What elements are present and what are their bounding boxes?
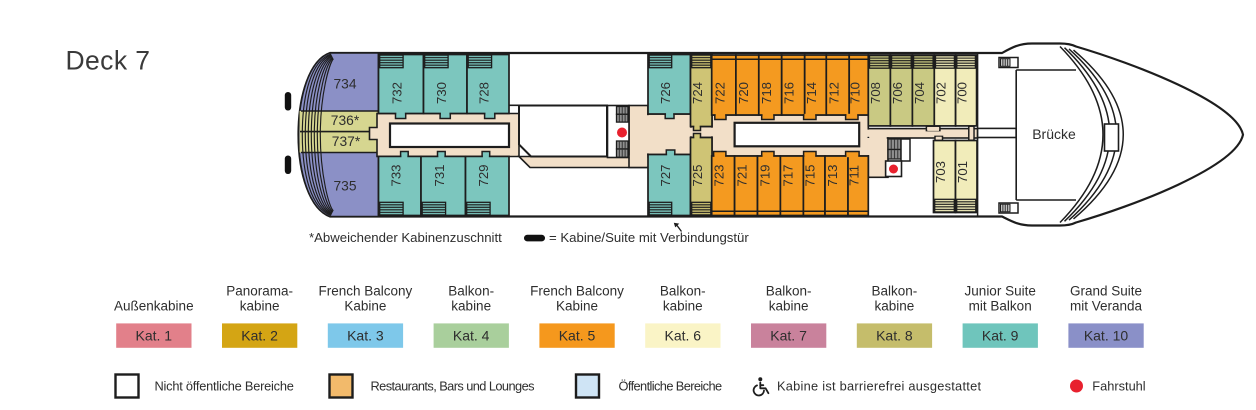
svg-text:Kabine: Kabine bbox=[344, 299, 386, 314]
svg-text:721: 721 bbox=[735, 164, 750, 186]
svg-text:736*: 736* bbox=[331, 113, 360, 128]
svg-text:Grand Suite: Grand Suite bbox=[1070, 283, 1142, 298]
svg-text:Balkon-: Balkon- bbox=[660, 283, 706, 298]
svg-text:731: 731 bbox=[432, 164, 447, 186]
svg-text:Kat. 3: Kat. 3 bbox=[347, 328, 384, 344]
svg-text:Brücke: Brücke bbox=[1032, 126, 1076, 142]
svg-text:724: 724 bbox=[690, 82, 705, 104]
svg-text:734: 734 bbox=[333, 77, 356, 92]
svg-text:701: 701 bbox=[955, 161, 970, 183]
svg-text:Nicht öffentliche Bereiche: Nicht öffentliche Bereiche bbox=[155, 379, 294, 394]
svg-text:711: 711 bbox=[847, 165, 862, 186]
svg-text:Deck 7: Deck 7 bbox=[66, 46, 151, 76]
svg-text:Balkon-: Balkon- bbox=[448, 283, 494, 298]
svg-text:737*: 737* bbox=[332, 134, 361, 149]
svg-text:kabine: kabine bbox=[240, 299, 280, 314]
svg-text:Kat. 8: Kat. 8 bbox=[876, 328, 913, 344]
svg-text:Panorama-: Panorama- bbox=[226, 283, 293, 298]
svg-text:723: 723 bbox=[712, 164, 727, 186]
svg-text:714: 714 bbox=[804, 82, 819, 104]
svg-text:Balkon-: Balkon- bbox=[872, 283, 918, 298]
svg-text:716: 716 bbox=[782, 82, 797, 104]
svg-text:Kabine ist barrierefrei ausges: Kabine ist barrierefrei ausgestattet bbox=[777, 379, 981, 394]
svg-text:Öffentliche Bereiche: Öffentliche Bereiche bbox=[619, 379, 722, 394]
svg-text:Kat. 10: Kat. 10 bbox=[1084, 328, 1129, 344]
svg-text:733: 733 bbox=[388, 164, 403, 186]
svg-text:712: 712 bbox=[826, 82, 841, 104]
svg-text:722: 722 bbox=[712, 82, 727, 104]
svg-text:703: 703 bbox=[933, 161, 948, 183]
svg-text:kabine: kabine bbox=[875, 299, 915, 314]
svg-text:727: 727 bbox=[658, 164, 673, 186]
svg-text:719: 719 bbox=[757, 164, 772, 186]
svg-text:Kat. 5: Kat. 5 bbox=[559, 328, 596, 344]
svg-text:729: 729 bbox=[476, 164, 491, 186]
svg-text:Junior Suite: Junior Suite bbox=[965, 283, 1036, 298]
svg-text:Kat. 9: Kat. 9 bbox=[982, 328, 1019, 344]
svg-text:Balkon-: Balkon- bbox=[766, 283, 812, 298]
svg-text:702: 702 bbox=[933, 82, 948, 104]
svg-text:Kabine: Kabine bbox=[556, 299, 598, 314]
svg-text:735: 735 bbox=[333, 179, 356, 194]
svg-text:717: 717 bbox=[780, 164, 795, 186]
svg-text:French Balcony: French Balcony bbox=[319, 283, 413, 298]
svg-text:Kat. 1: Kat. 1 bbox=[136, 328, 173, 344]
svg-text:726: 726 bbox=[658, 82, 673, 104]
svg-text:732: 732 bbox=[390, 82, 405, 104]
svg-text:kabine: kabine bbox=[451, 299, 491, 314]
svg-text:Fahrstuhl: Fahrstuhl bbox=[1092, 379, 1145, 394]
svg-text:Kat. 6: Kat. 6 bbox=[665, 328, 702, 344]
svg-text:706: 706 bbox=[890, 82, 905, 104]
svg-text:730: 730 bbox=[434, 82, 449, 104]
svg-text:= Kabine/Suite mit Verbindungs: = Kabine/Suite mit Verbindungstür bbox=[549, 230, 749, 245]
svg-text:715: 715 bbox=[803, 164, 818, 186]
svg-text:mit Balkon: mit Balkon bbox=[969, 299, 1032, 314]
svg-text:Kat. 2: Kat. 2 bbox=[241, 328, 278, 344]
svg-text:720: 720 bbox=[736, 82, 751, 104]
svg-text:kabine: kabine bbox=[663, 299, 703, 314]
svg-text:725: 725 bbox=[690, 164, 705, 186]
svg-text:French Balcony: French Balcony bbox=[530, 283, 624, 298]
svg-text:713: 713 bbox=[825, 164, 840, 186]
svg-text:*Abweichender Kabinenzuschnitt: *Abweichender Kabinenzuschnitt bbox=[309, 230, 502, 245]
svg-text:Außenkabine: Außenkabine bbox=[114, 299, 194, 314]
svg-text:mit Veranda: mit Veranda bbox=[1070, 299, 1143, 314]
svg-text:Restaurants, Bars und Lounges: Restaurants, Bars und Lounges bbox=[371, 379, 535, 394]
svg-text:708: 708 bbox=[868, 82, 883, 104]
svg-text:728: 728 bbox=[477, 82, 492, 104]
svg-text:kabine: kabine bbox=[769, 299, 809, 314]
svg-text:710: 710 bbox=[847, 82, 862, 104]
svg-text:Kat. 7: Kat. 7 bbox=[770, 328, 807, 344]
svg-text:Kat. 4: Kat. 4 bbox=[453, 328, 490, 344]
svg-text:718: 718 bbox=[759, 82, 774, 104]
svg-text:704: 704 bbox=[912, 82, 927, 104]
svg-text:700: 700 bbox=[955, 82, 970, 104]
